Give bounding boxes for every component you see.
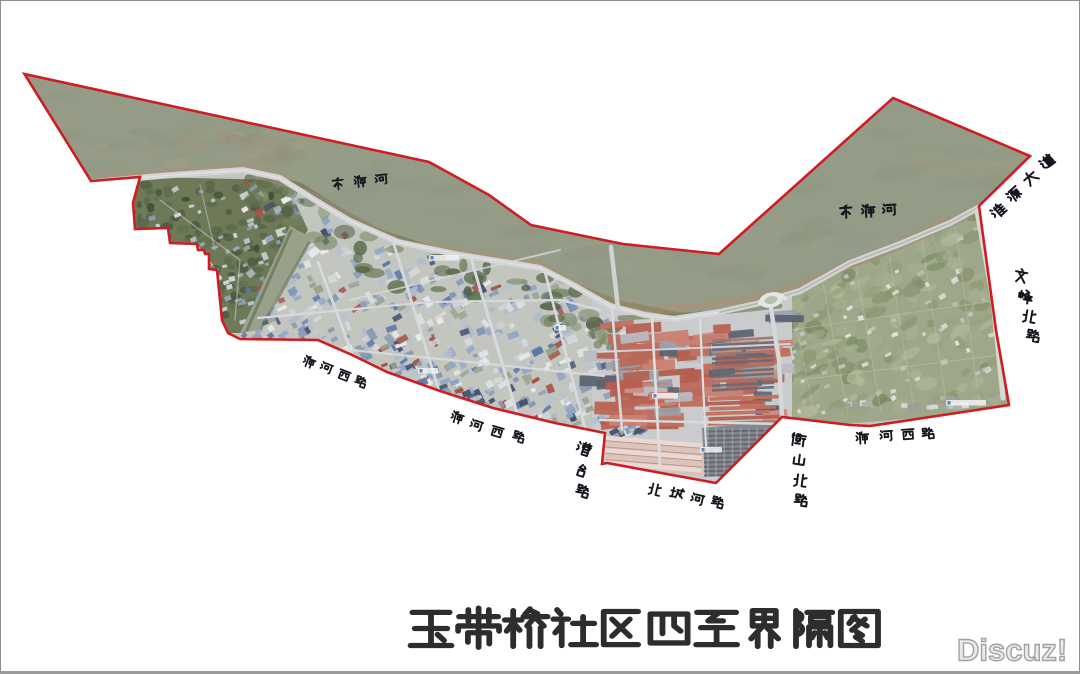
svg-text:Discuz!: Discuz! xyxy=(957,633,1067,668)
